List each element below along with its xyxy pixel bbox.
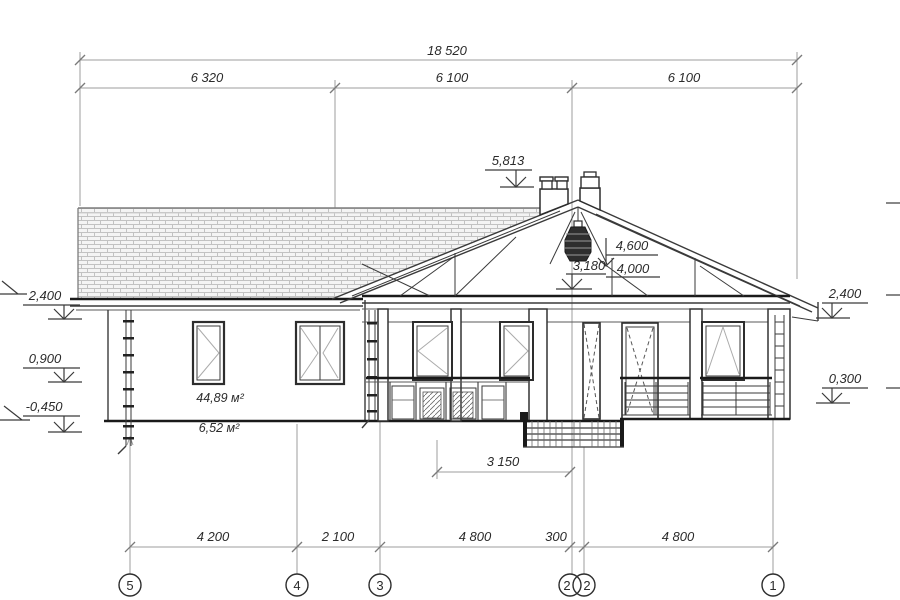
svg-text:0,900: 0,900	[29, 351, 62, 366]
dim-bot-1: 4 200	[197, 529, 230, 544]
stairs	[523, 421, 624, 447]
wall-right-corner	[768, 309, 790, 419]
svg-text:5,813: 5,813	[492, 153, 525, 168]
elevation-drawing: 18 520 6 320 6 100 6 100	[0, 0, 900, 600]
level-left-2400: 2,400	[23, 288, 82, 319]
elevation-sheet: 18 520 6 320 6 100 6 100	[0, 0, 900, 600]
grid-bubble-4: 4	[293, 578, 300, 593]
post-3	[690, 309, 702, 419]
window-veranda-1	[413, 322, 452, 380]
area-porch-label: 6,52 м²	[199, 421, 240, 435]
post-1	[378, 309, 388, 421]
dim-seg-2: 6 100	[436, 70, 469, 85]
grid-bubble-2a: 2	[563, 578, 570, 593]
dimension-top-segments: 6 320 6 100 6 100	[75, 70, 802, 93]
area-main-label: 44,89 м²	[196, 391, 244, 405]
svg-text:4,000: 4,000	[617, 261, 650, 276]
railing-2	[700, 378, 772, 415]
dim-porch-label: 3 150	[487, 454, 520, 469]
door-2	[622, 323, 658, 419]
dim-bot-3: 4 800	[459, 529, 492, 544]
level-chimney-5813: 5,813	[485, 153, 534, 187]
dim-seg-3: 6 100	[668, 70, 701, 85]
svg-text:-0,450: -0,450	[26, 399, 64, 414]
grid-bubble-5: 5	[126, 578, 133, 593]
grid-bubble-1: 1	[769, 578, 776, 593]
window-left-2	[296, 322, 344, 384]
dim-overall-label: 18 520	[427, 43, 468, 58]
level-lamp-3180: 3,180	[556, 258, 606, 289]
svg-text:0,300: 0,300	[829, 371, 862, 386]
downpipe-left	[118, 310, 134, 454]
level-left-0900: 0,900	[23, 351, 82, 382]
grid-bubble-2b: 2	[583, 578, 590, 593]
door-1	[583, 323, 600, 419]
dimension-top-overall: 18 520	[75, 43, 802, 65]
dimension-bottom: 4 200 2 100 4 800 300 4 800	[125, 529, 778, 552]
dim-bot-2: 2 100	[321, 529, 355, 544]
window-veranda-2	[500, 322, 533, 380]
veranda	[362, 309, 790, 428]
window-left-1	[193, 322, 224, 384]
dim-bot-5: 4 800	[662, 529, 695, 544]
level-right-2400: 2,400	[816, 286, 868, 318]
chimney-left	[540, 177, 568, 215]
grid-bubbles: 5 4 3 2 2 1	[119, 574, 784, 596]
level-left-m0450: -0,450	[23, 399, 82, 432]
window-right	[702, 322, 744, 380]
grid-bubble-3: 3	[376, 578, 383, 593]
grid-lines	[127, 420, 773, 574]
chimney-right	[580, 172, 600, 210]
level-right-0300: 0,300	[816, 371, 868, 403]
pendant-lamp	[564, 207, 592, 261]
border-marks-right	[886, 203, 900, 388]
dimension-porch: 3 150	[432, 454, 575, 477]
svg-text:4,600: 4,600	[616, 238, 649, 253]
svg-text:3,180: 3,180	[573, 258, 606, 273]
dim-bot-4: 300	[545, 529, 567, 544]
level-collar-4000: 4,000	[606, 261, 660, 277]
dim-seg-1: 6 320	[191, 70, 224, 85]
svg-text:2,400: 2,400	[28, 288, 62, 303]
svg-text:2,400: 2,400	[828, 286, 862, 301]
veranda-bench	[366, 378, 530, 420]
